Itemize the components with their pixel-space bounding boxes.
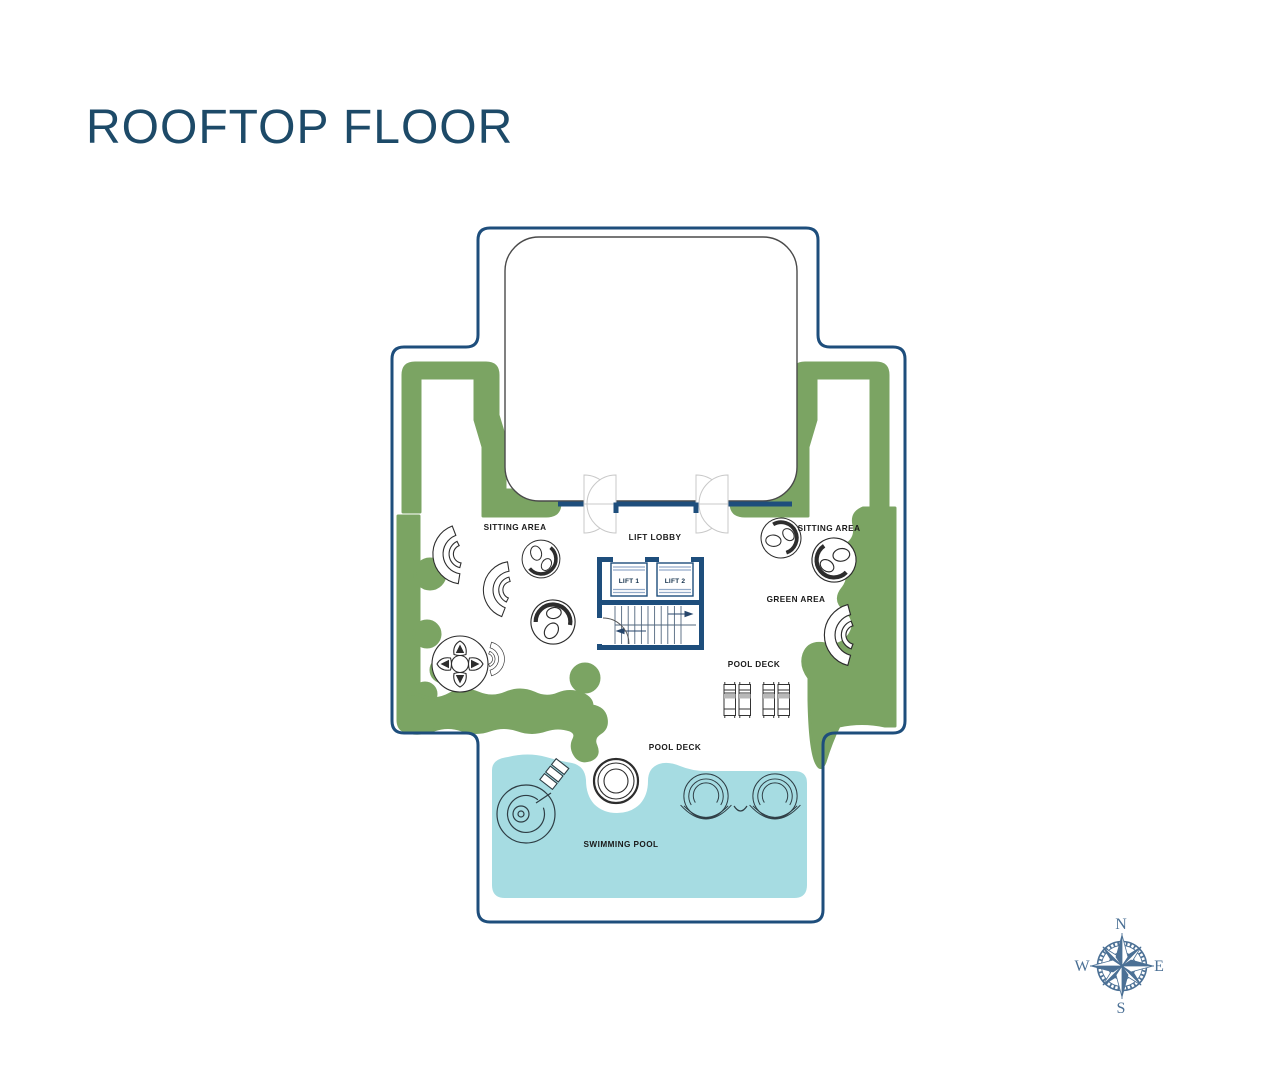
lift-1-label: LIFT 1 (619, 578, 640, 585)
compass-rose-icon (1090, 933, 1154, 999)
sun-lounger (739, 682, 751, 718)
label-swimming-pool: SWIMMING POOL (584, 840, 659, 849)
lift-core: LIFT 1 LIFT 2 (596, 557, 704, 650)
compass-south-label: S (1117, 1000, 1126, 1017)
label-pool-deck-upper: POOL DECK (728, 660, 781, 669)
sitting-area-left-furniture (430, 525, 583, 692)
deck-planter-ring (594, 759, 638, 803)
door-swing-right (696, 475, 728, 533)
sun-lounger (778, 682, 790, 718)
sun-loungers (724, 682, 790, 718)
fire-pit-lounge (432, 636, 488, 692)
floor-plan-svg: LIFT 1 LIFT 2 (0, 0, 1271, 1080)
door-swing-left (584, 475, 616, 533)
machine-room (505, 237, 797, 501)
rooftop-floor-plan-page: ROOFTOP FLOOR (0, 0, 1271, 1080)
compass-north-label: N (1115, 916, 1127, 933)
green-bump (414, 621, 440, 647)
label-lift-lobby: LIFT LOBBY (629, 533, 682, 542)
round-table-with-seats (754, 511, 809, 566)
green-bottom-band (398, 690, 606, 761)
green-left-strip (398, 516, 419, 712)
compass-west-label: W (1074, 958, 1090, 975)
label-pool-deck-lower: POOL DECK (649, 743, 702, 752)
round-table-with-seats (523, 592, 583, 652)
label-green-area: GREEN AREA (767, 595, 826, 604)
staircase (615, 606, 696, 644)
green-knob (571, 664, 599, 692)
curved-bench (489, 642, 505, 676)
sun-lounger (724, 682, 736, 718)
curved-bench (481, 560, 512, 618)
compass-east-label: E (1154, 958, 1164, 975)
label-sitting-area-right: SITTING AREA (798, 524, 861, 533)
sun-lounger (763, 682, 775, 718)
label-sitting-area-left: SITTING AREA (484, 523, 547, 532)
round-table-with-seats (519, 537, 563, 581)
lift-2-label: LIFT 2 (665, 578, 686, 585)
